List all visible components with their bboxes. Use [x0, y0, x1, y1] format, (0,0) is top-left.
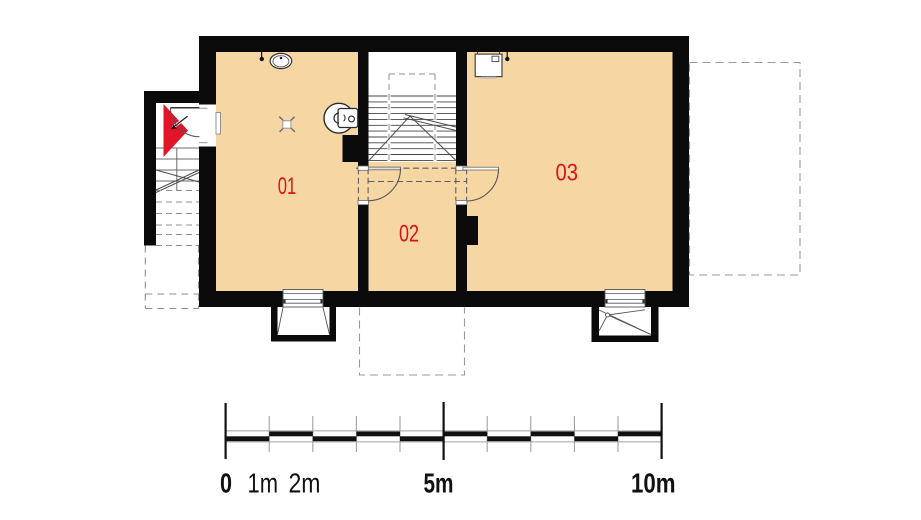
svg-text:03: 03: [556, 160, 579, 187]
svg-text:10m: 10m: [631, 468, 676, 499]
svg-text:02: 02: [399, 220, 419, 247]
svg-text:1m: 1m: [248, 468, 279, 499]
svg-text:0: 0: [220, 468, 232, 499]
svg-text:01: 01: [278, 173, 297, 200]
svg-text:5m: 5m: [424, 468, 454, 499]
svg-text:2m: 2m: [289, 468, 321, 499]
